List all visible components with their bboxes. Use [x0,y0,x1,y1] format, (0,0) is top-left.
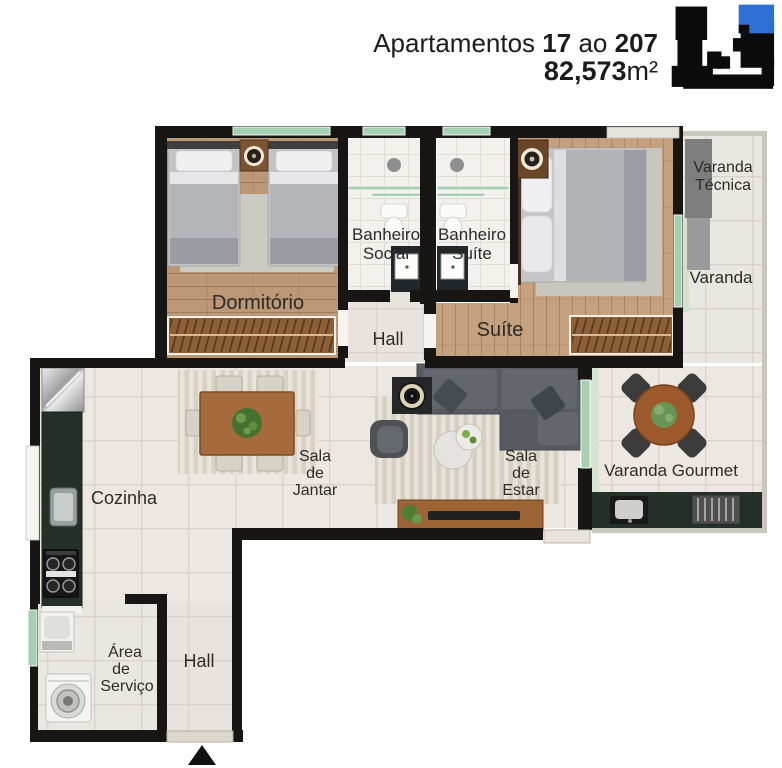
washing-machine [46,674,91,722]
label-area-servico-3: Serviço [100,678,153,695]
banheiro-suite-door [510,264,518,298]
cooktop [44,550,78,597]
label-hall-upper: Hall [372,329,403,349]
label-banheiro-social-2: Social [363,244,409,263]
area-servico-window [28,610,37,666]
shower-head [387,158,401,172]
banheiro-suite-window [443,127,490,135]
kitchen-service-window [26,446,39,540]
label-varanda-tecnica-2: Técnica [695,177,751,194]
banheiro-social-window [363,127,405,135]
single-bed-left [166,141,242,266]
label-cozinha: Cozinha [91,488,158,508]
suite-door [424,314,436,348]
table-plant [651,402,677,428]
entrance-arrow-icon [188,745,216,765]
estar-gourmet-glass-door [581,380,590,468]
shower-head [450,158,464,172]
shower-glass [348,186,422,190]
shower-glass [437,186,509,190]
grill [692,495,740,524]
wardrobe [570,316,673,354]
label-hall-entrada: Hall [183,651,214,671]
label-banheiro-suite-2: Suíte [452,244,492,263]
apartment-floor-plan: Dormitório Banheiro Social Banheiro Suít… [0,0,782,768]
nightstand-lamp [516,140,548,178]
centerpiece-plant [232,408,262,438]
label-sala-jantar-1: Sala [299,448,331,465]
label-sala-estar-1: Sala [505,448,537,465]
dormitorio-door [338,310,348,346]
gourmet-sink [610,496,648,524]
gourmet-threshold [544,530,590,543]
label-banheiro-suite-1: Banheiro [438,225,506,244]
label-sala-jantar-3: Jantar [293,482,338,499]
tv-sideboard [398,500,543,530]
dining-set [178,370,318,474]
single-bed-right [266,141,342,266]
label-varanda-tecnica-1: Varanda [693,159,752,176]
label-suite: Suíte [477,319,524,341]
label-sala-estar-3: Estar [502,482,540,499]
label-area-servico-1: Área [108,642,142,661]
label-banheiro-social-1: Banheiro [352,225,420,244]
label-sala-estar-2: de [512,465,530,482]
label-sala-jantar-2: de [306,465,324,482]
dormitorio-window [233,127,330,135]
label-area-servico-2: de [112,661,130,678]
side-table-speaker [392,377,432,414]
entry-threshold [167,731,233,742]
label-varanda-gourmet: Varanda Gourmet [604,461,738,480]
label-dormitorio: Dormitório [212,292,304,314]
label-varanda: Varanda [689,268,753,287]
suite-window [607,127,679,138]
wardrobe [168,317,335,354]
laundry-tank [40,612,74,652]
armchair [370,420,408,458]
kitchen-set [42,368,84,614]
suite-varanda-glass-door [674,215,682,307]
nightstand-lamp [240,140,268,171]
floor-plan-page: Apartamentos 17 ao 207 82,573m² [0,0,782,768]
